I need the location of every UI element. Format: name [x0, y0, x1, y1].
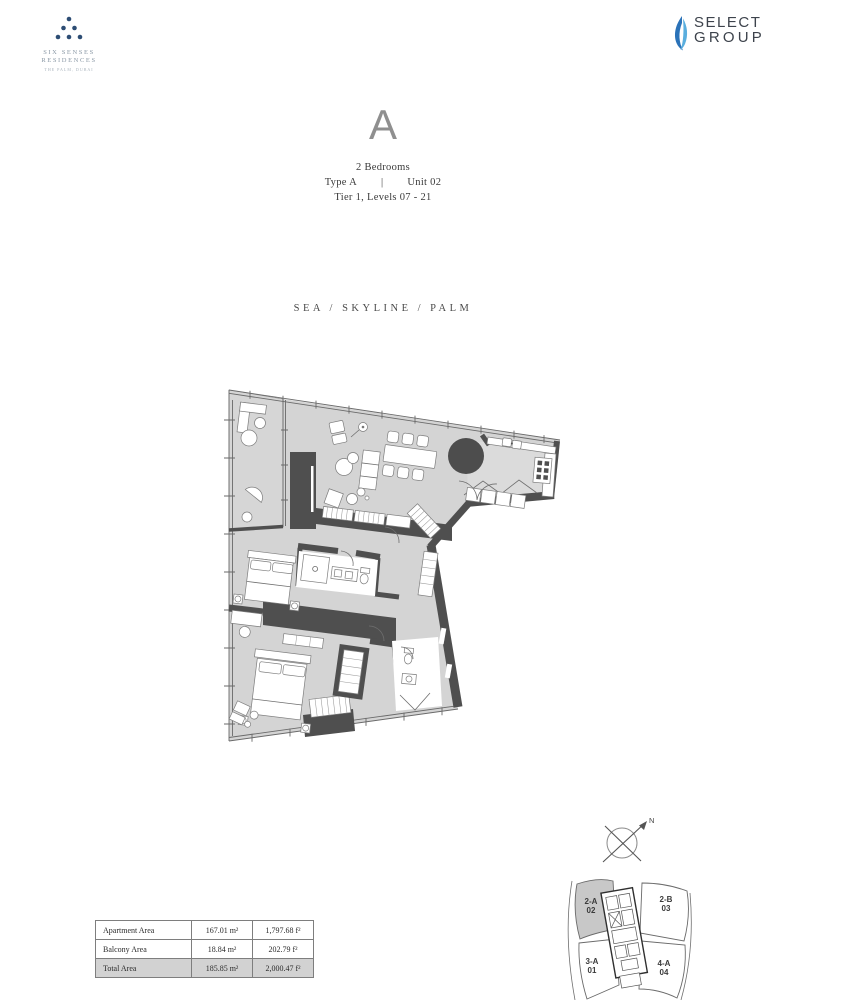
table-row-apartment: Apartment Area 167.01 m² 1,797.68 f² — [96, 921, 314, 940]
floor-plan-drawing: N 2-A 02 2-B 03 3-A 01 4-A 04 — [0, 0, 846, 1000]
area-metric: 167.01 m² — [192, 921, 253, 940]
area-label: Apartment Area — [96, 921, 192, 940]
table-row-balcony: Balcony Area 18.84 m² 202.79 f² — [96, 940, 314, 959]
key-plan: 2-A 02 2-B 03 3-A 01 4-A 04 — [568, 880, 691, 1000]
area-imperial: 2,000.47 f² — [253, 959, 314, 978]
area-imperial: 202.79 f² — [253, 940, 314, 959]
floor-plan-page: { "brand": { "residences": { "name_line1… — [0, 0, 846, 1000]
key-plan-label-code: 4-A — [658, 959, 671, 968]
key-plan-label-code: 2-B — [660, 895, 673, 904]
shower-icon — [301, 554, 330, 583]
bathroom-2 — [392, 637, 442, 711]
stove-icon — [533, 457, 552, 483]
round-chair-icon — [241, 430, 257, 446]
area-table: Apartment Area 167.01 m² 1,797.68 f² Bal… — [95, 920, 314, 978]
compass-north-label: N — [649, 816, 654, 825]
north-arrow-icon — [639, 821, 647, 830]
vanity-icon — [402, 673, 417, 684]
area-metric: 185.85 m² — [192, 959, 253, 978]
compass: N — [603, 816, 654, 862]
key-plan-label-number: 03 — [662, 904, 671, 913]
area-label: Balcony Area — [96, 940, 192, 959]
tv-screen — [311, 466, 314, 512]
feature-table-icon — [448, 438, 484, 474]
key-plan-label-number: 02 — [587, 906, 596, 915]
area-label: Total Area — [96, 959, 192, 978]
key-plan-label-code: 2-A — [585, 897, 598, 906]
area-metric: 18.84 m² — [192, 940, 253, 959]
key-plan-label-code: 3-A — [586, 957, 599, 966]
area-imperial: 1,797.68 f² — [253, 921, 314, 940]
key-plan-label-number: 01 — [588, 966, 597, 975]
table-row-total: Total Area 185.85 m² 2,000.47 f² — [96, 959, 314, 978]
key-plan-label-number: 04 — [660, 968, 669, 977]
